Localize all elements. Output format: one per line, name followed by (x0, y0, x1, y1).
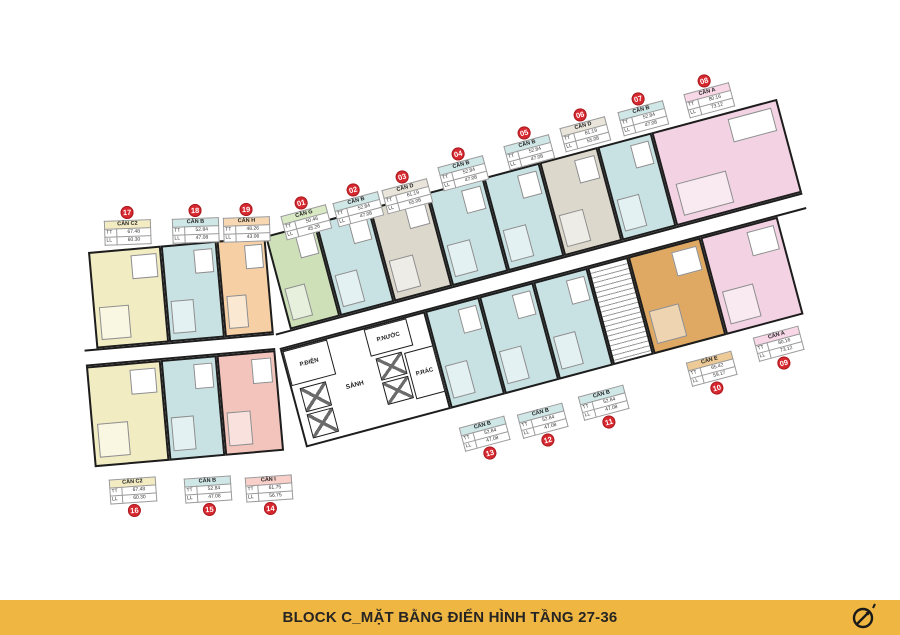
unit-number-badge-16: 16 (127, 503, 141, 517)
unit-info-table-09: CĂN A TT80.16 LL73.12 (753, 326, 805, 362)
unit-number-badge-19: 19 (239, 203, 252, 216)
north-arrow-icon (850, 602, 880, 632)
unit-label-10: 10 CĂN E TT65.42 LL59.17 (686, 351, 741, 401)
unit-18-can-b (161, 241, 225, 343)
unit-15-can-b (161, 355, 226, 460)
elevator-2 (307, 407, 340, 438)
unit-label-12: 12 CĂN B TT52.84 LL47.08 (517, 403, 572, 453)
unit-info-table-18: CĂN B TT52.84 LL47.08 (172, 217, 220, 244)
water-room-label: P.NƯỚC (376, 332, 400, 344)
unit-label-11: 11 CĂN B TT52.84 LL47.08 (578, 385, 633, 435)
unit-info-table-12: CĂN B TT52.84 LL47.08 (517, 403, 569, 439)
page-title: BLOCK C_MẶT BẰNG ĐIỂN HÌNH TẦNG 27-36 (283, 609, 618, 626)
unit-info-table-10: CĂN E TT65.42 LL59.17 (686, 351, 738, 387)
unit-info-table-17: CĂN C2 TT67.48 LL60.30 (104, 219, 152, 246)
electrical-room: P.ĐIỆN (282, 340, 336, 387)
unit-number-badge-15: 15 (202, 502, 216, 516)
unit-label-13: 13 CĂN B TT52.84 LL47.08 (459, 416, 514, 466)
unit-label-14: 14 CĂN I TT61.75 LL56.75 (245, 474, 295, 516)
unit-14-can-i (216, 350, 284, 456)
unit-number-badge-13: 13 (482, 445, 498, 461)
unit-label-19: 19 CĂN H TT48.26 LL43.06 (222, 202, 270, 243)
unit-label-17: 17 CĂN C2 TT67.48 LL60.30 (103, 205, 151, 246)
electrical-room-label: P.ĐIỆN (299, 357, 319, 368)
unit-number-badge-10: 10 (709, 380, 725, 396)
unit-number-badge-14: 14 (263, 501, 277, 515)
unit-info-table-15: CĂN B TT52.84 LL47.08 (184, 475, 233, 503)
unit-info-table-14: CĂN I TT61.75 LL56.75 (245, 474, 294, 502)
unit-info-table-19: CĂN H TT48.26 LL43.06 (223, 216, 271, 243)
unit-label-15: 15 CĂN B TT52.84 LL47.08 (184, 475, 234, 517)
unit-number-badge-17: 17 (120, 206, 133, 219)
unit-label-08: 08 CĂN A TT80.16 LL73.12 (680, 69, 735, 119)
lobby-label: SẢNH (345, 380, 365, 392)
unit-number-badge-09: 09 (776, 355, 792, 371)
unit-label-16: 16 CĂN C2 TT67.48 LL60.30 (109, 476, 159, 518)
unit-number-badge-12: 12 (540, 432, 556, 448)
building-wing-left (88, 236, 284, 466)
unit-info-table-13: CĂN B TT52.84 LL47.08 (459, 416, 511, 452)
unit-label-18: 18 CĂN B TT52.84 LL47.08 (171, 203, 219, 244)
unit-info-table-11: CĂN B TT52.84 LL47.08 (578, 385, 630, 421)
title-bar: BLOCK C_MẶT BẰNG ĐIỂN HÌNH TẦNG 27-36 (0, 600, 900, 635)
floor-plan-page: P.ĐIỆN SẢNH P.NƯỚC P.RÁC 17 CĂN C2 TT67.… (0, 0, 900, 635)
unit-number-badge-11: 11 (601, 414, 617, 430)
unit-17-can-c2 (88, 246, 169, 349)
unit-number-badge-18: 18 (188, 204, 201, 217)
unit-16-can-c2 (86, 360, 170, 467)
unit-19-can-h (217, 236, 274, 337)
unit-info-table-16: CĂN C2 TT67.48 LL60.30 (109, 476, 158, 504)
elevator-4 (382, 376, 414, 405)
unit-label-09: 09 CĂN A TT80.16 LL73.12 (753, 326, 808, 376)
trash-room-label: P.RÁC (415, 367, 434, 377)
